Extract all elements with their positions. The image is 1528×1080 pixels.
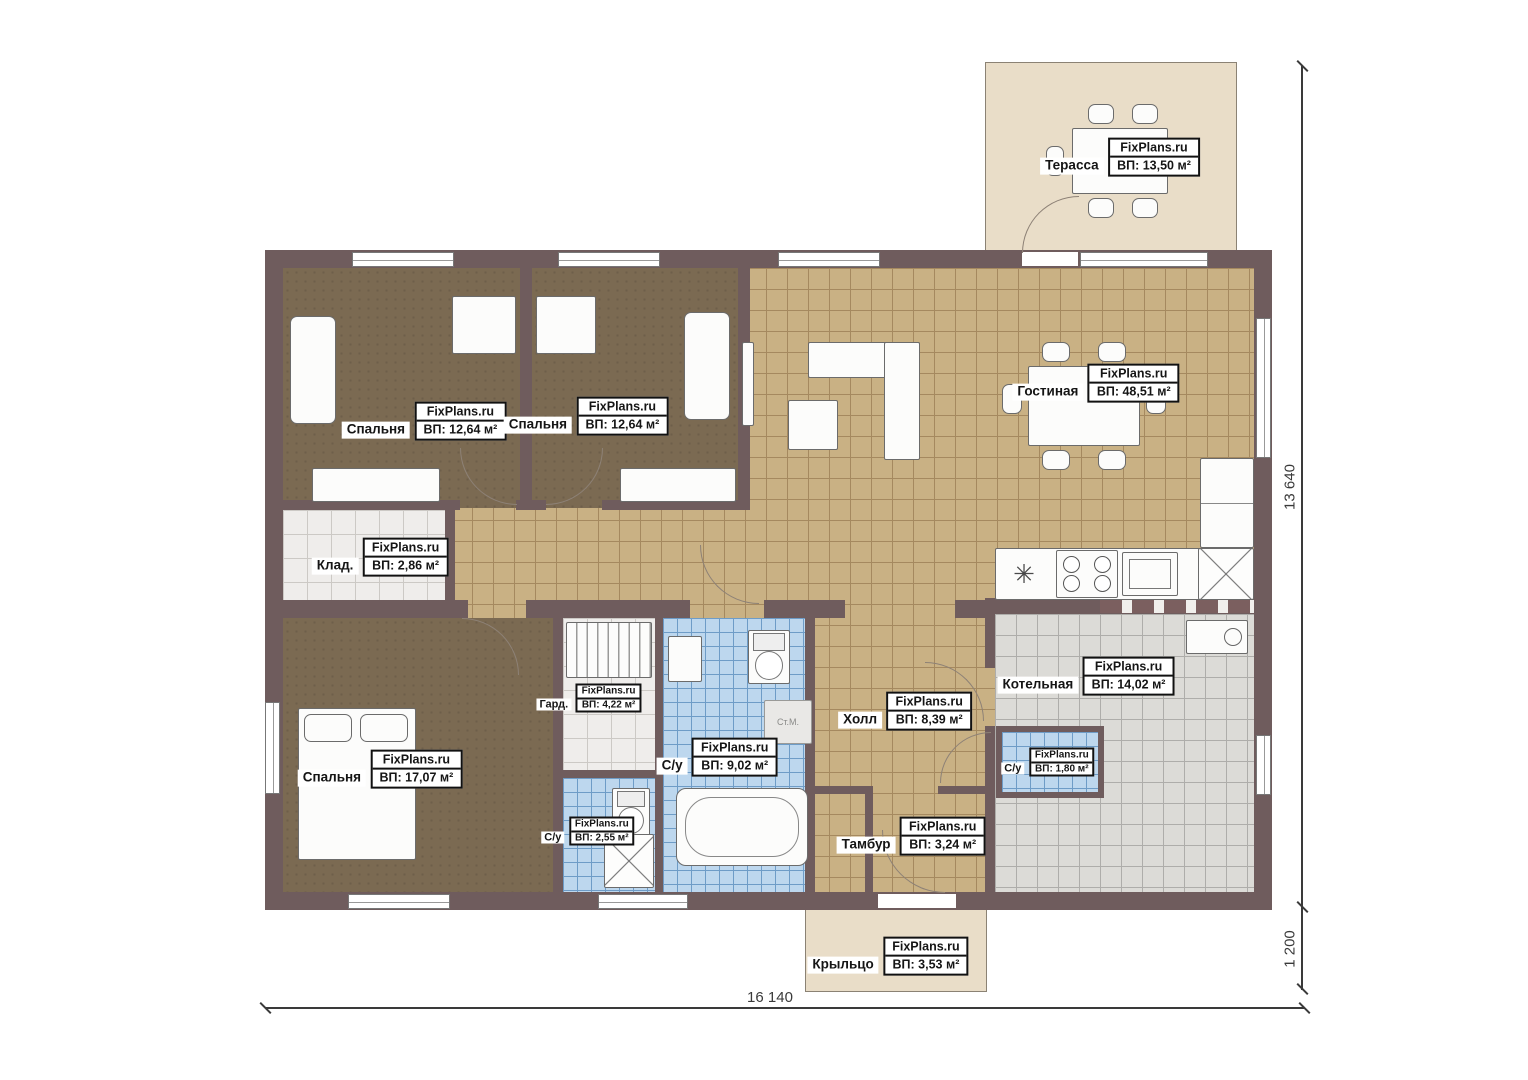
dining-chair	[1098, 450, 1126, 470]
room-label-bedroom2: Спальня FixPlans.ru ВП: 12,64 м²	[504, 397, 669, 436]
room-label-living: Гостиная FixPlans.ru ВП: 48,51 м²	[1012, 364, 1179, 403]
room-name: Гостиная	[1012, 384, 1083, 401]
label-boxes: FixPlans.ru ВП: 2,55 м²	[569, 817, 635, 846]
dimension-height-label: 13 640	[1282, 460, 1299, 514]
window-top-2	[558, 252, 660, 267]
wall-between-bedrooms	[520, 268, 532, 508]
bathtub	[676, 788, 808, 866]
door-gap-terrace	[1022, 252, 1078, 266]
dining-chair	[1098, 342, 1126, 362]
label-boxes: FixPlans.ru ВП: 48,51 м²	[1088, 364, 1180, 403]
window-left	[265, 702, 280, 794]
label-boxes: FixPlans.ru ВП: 13,50 м²	[1108, 138, 1200, 177]
door-gap-entrance	[878, 894, 956, 908]
room-area: ВП: 8,39 м²	[888, 710, 969, 728]
room-name: С/у	[657, 758, 688, 775]
dimension-line-height	[1301, 66, 1303, 908]
brand-text: FixPlans.ru	[372, 752, 460, 768]
sofa-bedroom2	[684, 312, 730, 420]
wall-corridor-a	[445, 600, 468, 618]
room-name: С/у	[541, 831, 564, 844]
label-boxes: FixPlans.ru ВП: 3,53 м²	[883, 937, 968, 976]
label-boxes: FixPlans.ru ВП: 17,07 м²	[370, 750, 462, 789]
floor-plan-canvas: ✳ Ст.М. Терасса FixPlans.ru ВП: 13,50 м²…	[0, 0, 1528, 1080]
bathroom-sink	[668, 636, 702, 682]
brand-text: FixPlans.ru	[1110, 140, 1198, 156]
room-area: ВП: 3,24 м²	[902, 835, 983, 853]
label-boxes: FixPlans.ru ВП: 9,02 м²	[692, 738, 777, 777]
room-label-boiler: Котельная FixPlans.ru ВП: 14,02 м²	[998, 657, 1175, 696]
dining-chair	[1042, 450, 1070, 470]
room-label-bedroom3: Спальня FixPlans.ru ВП: 17,07 м²	[298, 750, 463, 789]
room-name: Клад.	[312, 558, 359, 575]
room-area: ВП: 3,53 м²	[885, 955, 966, 973]
stove-burner	[1094, 556, 1111, 573]
room-label-hall: Холл FixPlans.ru ВП: 8,39 м²	[838, 692, 972, 731]
room-name: Тамбур	[837, 837, 896, 854]
window-right-boiler	[1256, 735, 1271, 795]
brand-text: FixPlans.ru	[902, 819, 983, 835]
brand-text: FixPlans.ru	[578, 686, 640, 698]
window-bottom-2	[598, 894, 688, 909]
dimension-line-porch	[1301, 908, 1303, 990]
wall-corridor-b	[526, 600, 690, 618]
brand-text: FixPlans.ru	[416, 404, 504, 420]
room-label-terrace: Терасса FixPlans.ru ВП: 13,50 м²	[1040, 138, 1200, 177]
room-name: С/у	[1001, 762, 1024, 775]
window-top-3	[778, 252, 880, 267]
closet-bedroom1	[312, 468, 440, 502]
wall-corridor-c	[764, 600, 845, 618]
room-area: ВП: 1,80 м²	[1031, 761, 1093, 775]
dimension-porch-label: 1 200	[1282, 926, 1299, 972]
wall-below-storage	[283, 600, 445, 618]
stove-burner	[1094, 575, 1111, 592]
coffee-table	[788, 400, 838, 450]
wardrobe-rail	[566, 622, 652, 678]
wall-wardrobe-bathsmall	[563, 770, 655, 778]
label-boxes: FixPlans.ru ВП: 2,86 м²	[363, 538, 448, 577]
brand-text: FixPlans.ru	[571, 819, 633, 831]
sofa-bedroom1	[290, 316, 336, 424]
room-label-bathroom-main: С/у FixPlans.ru ВП: 9,02 м²	[657, 738, 778, 777]
toilet-main	[748, 630, 790, 684]
room-name: Гард.	[536, 698, 571, 711]
wall-corridor-d	[955, 600, 985, 618]
stove	[1056, 550, 1118, 598]
brand-text: FixPlans.ru	[578, 399, 666, 415]
room-label-vestibule: Тамбур FixPlans.ru ВП: 3,24 м²	[837, 817, 986, 856]
window-right-living	[1256, 318, 1271, 458]
closet-bedroom2	[620, 468, 736, 502]
room-area: ВП: 12,64 м²	[416, 420, 504, 438]
room-area: ВП: 4,22 м²	[578, 697, 640, 711]
room-area: ВП: 12,64 м²	[578, 415, 666, 433]
fridge	[1122, 552, 1178, 596]
label-boxes: FixPlans.ru ВП: 12,64 м²	[576, 397, 668, 436]
brand-text: FixPlans.ru	[694, 740, 775, 756]
corner-sofa-side	[884, 342, 920, 460]
wall-hall-boiler-a	[985, 598, 995, 668]
room-area: ВП: 48,51 м²	[1090, 382, 1178, 400]
brand-text: FixPlans.ru	[1090, 366, 1178, 382]
room-label-bathroom-boiler: С/у FixPlans.ru ВП: 1,80 м²	[1001, 748, 1094, 777]
label-boxes: FixPlans.ru ВП: 12,64 м²	[414, 402, 506, 441]
room-area: ВП: 9,02 м²	[694, 756, 775, 774]
kitchen-sink-icon: ✳	[1002, 552, 1046, 596]
dimension-line-width	[265, 1007, 1305, 1009]
wall-hall-vestibule-a	[815, 786, 873, 794]
room-label-wardrobe: Гард. FixPlans.ru ВП: 4,22 м²	[536, 684, 641, 713]
label-boxes: FixPlans.ru ВП: 3,24 м²	[900, 817, 985, 856]
wall-kitchen-niche	[1100, 600, 1254, 613]
room-name: Крыльцо	[807, 957, 878, 974]
room-area: ВП: 13,50 м²	[1110, 156, 1198, 174]
label-boxes: FixPlans.ru ВП: 8,39 м²	[886, 692, 971, 731]
brand-text: FixPlans.ru	[888, 694, 969, 710]
room-name: Терасса	[1040, 158, 1104, 175]
stove-burner	[1063, 575, 1080, 592]
room-area: ВП: 2,86 м²	[365, 556, 446, 574]
tv-unit	[742, 342, 754, 426]
pillow	[304, 714, 352, 742]
room-label-bathroom-small: С/у FixPlans.ru ВП: 2,55 м²	[541, 817, 634, 846]
label-boxes: FixPlans.ru ВП: 14,02 м²	[1083, 657, 1175, 696]
room-label-storage: Клад. FixPlans.ru ВП: 2,86 м²	[312, 538, 449, 577]
brand-text: FixPlans.ru	[885, 939, 966, 955]
dimension-width-label: 16 140	[743, 989, 797, 1006]
brand-text: FixPlans.ru	[1085, 659, 1173, 675]
desk-bedroom1	[452, 296, 516, 354]
room-name: Спальня	[342, 422, 410, 439]
desk-bedroom2	[536, 296, 596, 354]
wall-hall-vestibule-b	[938, 786, 985, 794]
corner-cabinet	[1198, 548, 1254, 600]
label-boxes: FixPlans.ru ВП: 4,22 м²	[576, 684, 642, 713]
room-name: Котельная	[998, 677, 1079, 694]
room-area: ВП: 2,55 м²	[571, 830, 633, 844]
dining-chair	[1042, 342, 1070, 362]
pillow	[360, 714, 408, 742]
boiler-unit	[1186, 620, 1248, 654]
brand-text: FixPlans.ru	[1031, 750, 1093, 762]
terrace-chair	[1088, 104, 1114, 124]
wall-outer-left	[265, 250, 283, 910]
terrace-chair	[1132, 198, 1158, 218]
kitchen-column-cabinet	[1200, 458, 1254, 548]
room-area: ВП: 14,02 м²	[1085, 675, 1173, 693]
room-name: Спальня	[504, 417, 572, 434]
label-boxes: FixPlans.ru ВП: 1,80 м²	[1029, 748, 1095, 777]
window-bottom-1	[348, 894, 450, 909]
terrace-chair	[1088, 198, 1114, 218]
terrace-chair	[1132, 104, 1158, 124]
window-terrace	[1080, 252, 1208, 267]
window-top-1	[352, 252, 454, 267]
room-name: Спальня	[298, 770, 366, 787]
room-name: Холл	[838, 712, 882, 729]
wall-below-bedrooms-mid	[516, 500, 546, 510]
room-label-porch: Крыльцо FixPlans.ru ВП: 3,53 м²	[807, 937, 968, 976]
room-label-bedroom1: Спальня FixPlans.ru ВП: 12,64 м²	[342, 402, 507, 441]
brand-text: FixPlans.ru	[365, 540, 446, 556]
wall-bedroom3-wardrobe	[553, 618, 563, 894]
stove-burner	[1063, 556, 1080, 573]
room-area: ВП: 17,07 м²	[372, 768, 460, 786]
